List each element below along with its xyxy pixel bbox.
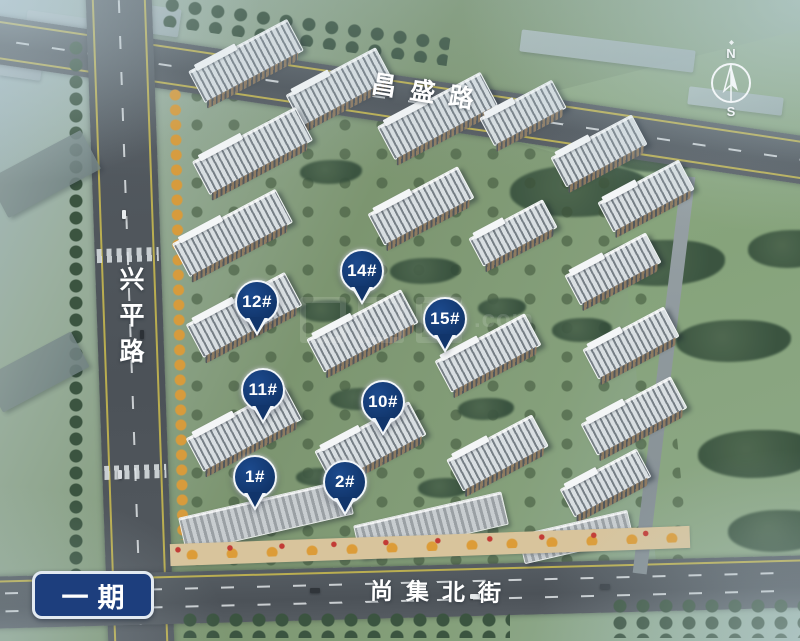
tree-cluster bbox=[698, 430, 800, 478]
tree-band bbox=[66, 40, 88, 600]
road-label-shangji: 尚集北街 bbox=[370, 572, 515, 609]
pin-label: 15# bbox=[430, 309, 460, 329]
city-block bbox=[519, 29, 695, 72]
pin-tail bbox=[337, 497, 353, 512]
building-marker-1[interactable]: 1# bbox=[233, 455, 277, 515]
pin-tail bbox=[249, 317, 265, 332]
building-marker-11[interactable]: 11# bbox=[241, 368, 285, 428]
pin-label: 14# bbox=[347, 261, 377, 281]
compass-north-label: N bbox=[726, 47, 735, 61]
pin-label: 11# bbox=[249, 380, 278, 400]
building-marker-2[interactable]: 2# bbox=[323, 460, 367, 520]
tree-band bbox=[610, 598, 800, 638]
car bbox=[122, 210, 126, 219]
crosswalk bbox=[104, 464, 166, 480]
pin-tail bbox=[375, 417, 391, 432]
road-label-xingping: 兴平路 bbox=[112, 266, 148, 374]
pin-tail bbox=[247, 492, 263, 507]
pin-label: 12# bbox=[242, 292, 272, 312]
building-marker-15[interactable]: 15# bbox=[423, 297, 467, 357]
compass: N S bbox=[705, 40, 757, 119]
tree-band bbox=[180, 612, 510, 638]
phase-badge: 一期 bbox=[32, 571, 154, 619]
pin-tail bbox=[354, 286, 370, 301]
compass-tick bbox=[729, 40, 734, 45]
building-marker-14[interactable]: 14# bbox=[340, 249, 384, 309]
pin-tail bbox=[255, 405, 271, 420]
pin-label: 2# bbox=[335, 472, 355, 492]
crosswalk bbox=[97, 247, 159, 263]
pin-label: 10# bbox=[368, 392, 398, 412]
car bbox=[600, 584, 610, 589]
pin-label: 1# bbox=[245, 467, 265, 487]
car bbox=[118, 470, 122, 479]
compass-needle-icon bbox=[709, 61, 753, 105]
compass-south-label: S bbox=[727, 105, 736, 119]
building-marker-12[interactable]: 12# bbox=[235, 280, 279, 340]
building-marker-10[interactable]: 10# bbox=[361, 380, 405, 440]
site-plan-render: .com 昌盛路 兴平路 尚集北街 12# 14# 15# 11# 10# 1#… bbox=[0, 0, 800, 641]
pin-tail bbox=[437, 334, 453, 349]
car bbox=[310, 588, 320, 593]
